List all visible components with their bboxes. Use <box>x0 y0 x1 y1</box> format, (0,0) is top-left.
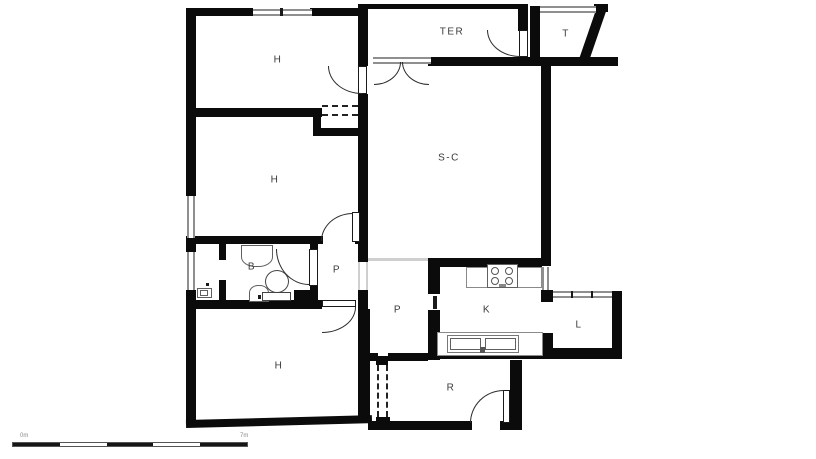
door-arc-icon <box>487 30 520 57</box>
room-label-b: B <box>248 262 256 273</box>
wall <box>428 258 542 267</box>
scale-segment <box>200 443 247 446</box>
wall <box>510 360 522 430</box>
window <box>187 196 195 238</box>
wall <box>376 356 388 365</box>
door-arc-icon <box>470 390 504 423</box>
tap-dot <box>206 283 209 286</box>
door-leaf <box>309 249 318 286</box>
door-leaf <box>322 300 356 307</box>
opening <box>358 262 368 290</box>
scale-start-label: 0m <box>20 433 28 439</box>
wall <box>358 4 524 9</box>
kitchen-sink-icon <box>447 335 519 353</box>
wall <box>358 4 368 66</box>
wall <box>376 417 390 426</box>
scale-end-label: 7m <box>240 433 248 439</box>
burner-icon <box>505 267 513 275</box>
wall <box>358 290 368 309</box>
wall <box>294 290 318 302</box>
room-label-p2: P <box>394 305 402 316</box>
room-label-h3: H <box>275 361 284 372</box>
scale-segment <box>107 443 154 446</box>
wall <box>358 309 370 421</box>
wall <box>186 108 322 117</box>
wall <box>219 244 226 260</box>
room-label-ter: TER <box>440 27 465 38</box>
wall <box>186 415 372 428</box>
door-leaf <box>503 390 510 423</box>
sink-basin <box>450 338 481 350</box>
scale-bar <box>12 442 248 447</box>
room-label-h1: H <box>274 55 283 66</box>
door-leaf <box>352 212 360 242</box>
room-label-t: T <box>562 29 570 40</box>
sink-tap <box>480 347 485 353</box>
door-arc-icon <box>321 213 353 241</box>
stove-knob <box>499 284 506 287</box>
burner-icon <box>505 277 513 285</box>
burner-icon <box>491 267 499 275</box>
door-arc-icon <box>322 307 356 333</box>
opening <box>368 258 428 261</box>
toilet-icon <box>265 270 289 293</box>
burner-icon <box>491 277 499 285</box>
room-label-l: L <box>575 320 582 331</box>
wall <box>518 4 528 31</box>
wall <box>428 258 440 294</box>
scale-segment <box>60 443 107 446</box>
wall <box>358 353 378 361</box>
door-arc-icon <box>374 62 401 85</box>
window <box>542 267 549 290</box>
floor-plan: H TER T S-C H B P P K L H R 0m 7m <box>0 0 816 459</box>
wall <box>186 8 253 16</box>
toilet-tank <box>262 292 291 301</box>
door-arc-icon <box>402 62 429 85</box>
window <box>553 291 612 298</box>
door-leaf <box>433 296 437 309</box>
window <box>540 6 596 13</box>
room-label-p1: P <box>333 265 341 276</box>
room-label-k: K <box>483 305 491 316</box>
window <box>187 252 195 290</box>
wall <box>541 66 551 266</box>
sliding-opening <box>322 105 358 116</box>
wall <box>313 128 368 136</box>
wall <box>186 290 196 421</box>
window-mullion <box>571 291 573 298</box>
window-mullion <box>591 291 593 298</box>
room-label-sc: S-C <box>438 153 460 164</box>
stove-icon <box>487 264 518 288</box>
wardrobe-icon <box>377 365 388 417</box>
scale-segment <box>13 443 60 446</box>
room-label-r: R <box>447 383 456 394</box>
washbasin-bowl <box>200 290 208 296</box>
window-mullion <box>280 8 283 16</box>
scale-segment <box>153 443 200 446</box>
wall <box>186 8 196 196</box>
door-arc-icon <box>328 66 362 94</box>
washbasin-icon <box>241 245 273 267</box>
wall <box>388 353 428 361</box>
sink-basin <box>485 338 516 350</box>
bidet-drain <box>258 295 261 299</box>
wall <box>186 236 323 244</box>
wall <box>612 291 622 351</box>
door-leaf <box>519 30 528 57</box>
room-label-h2: H <box>271 175 280 186</box>
wall <box>530 6 540 58</box>
wall <box>541 290 553 302</box>
